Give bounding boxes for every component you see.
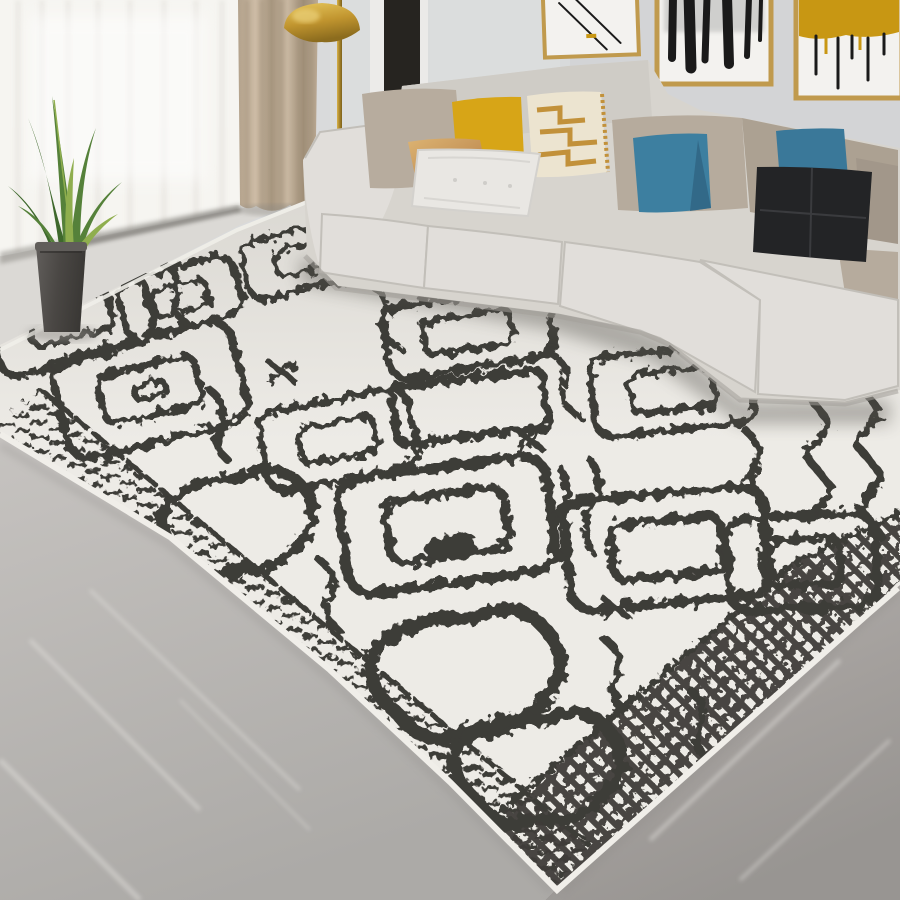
living-room-photo <box>0 0 900 900</box>
plant-pot <box>35 242 87 332</box>
wall-art-frame-1 <box>543 0 639 58</box>
gold-greek-key-pillow <box>527 92 608 178</box>
teal-pillow-left <box>633 134 711 213</box>
wall-art-frame-2 <box>657 0 771 84</box>
scene-canvas <box>0 0 900 900</box>
black-pillow <box>753 167 872 262</box>
wall-art-frame-3 <box>796 0 900 98</box>
white-quilted-pillow <box>412 150 540 217</box>
